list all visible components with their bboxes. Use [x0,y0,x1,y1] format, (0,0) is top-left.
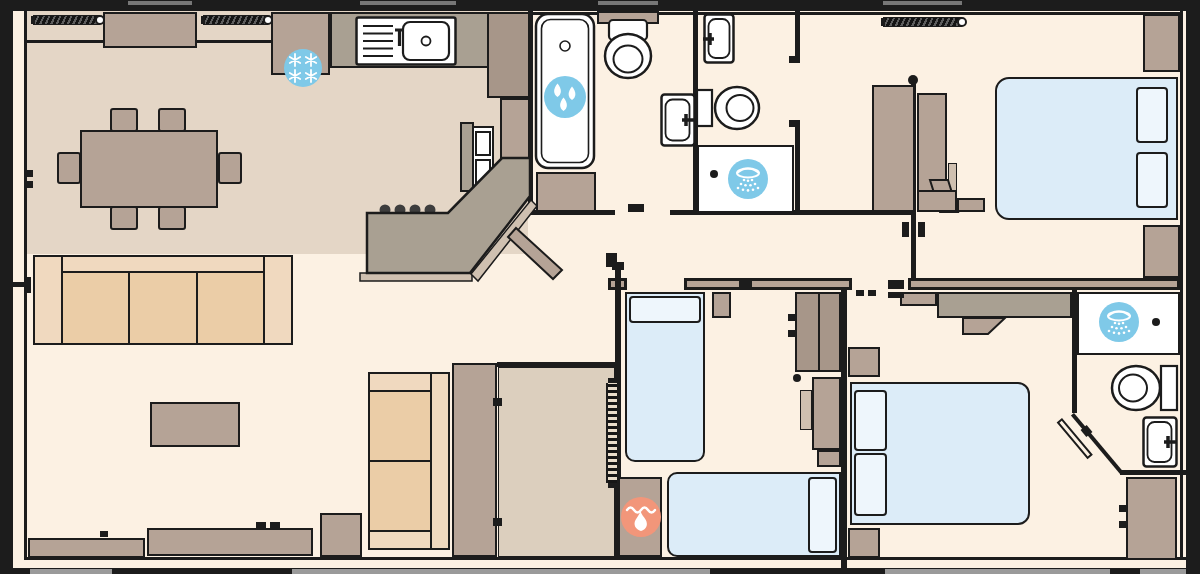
toilet [596,8,662,82]
kitchen-tall-unit [487,12,530,98]
pillow [629,296,701,323]
blind-end-cap [201,16,205,24]
sofa-back [430,372,450,550]
kitchen-sink [355,16,457,66]
door-hinge-mark [1119,505,1127,512]
locker-angled [961,316,1009,336]
door-hinge-mark [789,56,800,63]
window-segment-top [883,1,962,5]
wall-bracket [24,277,31,293]
sofa-cushion [368,460,432,532]
door-stop-mark [888,280,904,289]
basin [660,93,696,147]
door-stop-mark [628,204,644,212]
door-hinge-mark [24,170,33,177]
chassis-segment [885,569,1110,574]
wall-showerroom-master [795,0,800,62]
sofa-armrest [33,255,63,345]
wardrobe-divider [818,294,820,370]
handle-mark [788,330,796,337]
chassis-segment [1140,569,1186,574]
basin [1142,416,1178,468]
sofa-cushion [128,271,198,345]
storage-cupboard-floor [498,367,615,557]
wall-ensuite2-bottom [1120,470,1186,475]
dining-chair [158,108,186,132]
tv-unit [28,538,145,558]
sofa-cushion [368,390,432,462]
unit-detail [100,531,108,537]
outer-wall-right [1186,0,1200,574]
blind-roller-end [957,17,967,27]
wardrobe [1126,477,1177,560]
toilet [1106,363,1180,413]
bath-end-cabinet [536,172,596,212]
sofa-cushion [196,271,265,345]
radiator-cap [608,378,617,383]
overhead-locker [937,292,1072,318]
shower-control [1152,318,1160,326]
tall-cabinet [452,363,497,557]
sofa-armrest [368,372,432,392]
inner-wall-bottom [24,557,1186,560]
sideboard [103,12,197,48]
chassis-segment [292,569,710,574]
window-blind [883,17,962,27]
blind-end-cap [31,16,35,24]
window-segment-top [128,1,192,5]
sofa-armrest [368,530,432,550]
partition-end-post [908,75,918,85]
storage-top-wall [497,362,617,367]
window-blind [203,15,268,25]
storage-step [817,450,841,467]
door-stop-mark [888,292,904,298]
bedside-cabinet [848,528,880,558]
wall-showerroom-master [795,122,800,213]
heating-icon [620,496,662,538]
sofa-large [33,255,293,345]
pillow [854,453,887,516]
shower-icon-ensuite [1098,301,1140,343]
unit-detail [256,522,266,528]
toilet [695,82,763,134]
handle-mark [788,314,796,321]
outer-wall-left [0,0,13,574]
tv-unit [147,528,313,556]
basin [703,13,735,64]
bedside-cabinet [848,347,880,377]
dining-chair [57,152,81,184]
bedside-unit [712,292,731,318]
door-stop-mark [739,280,752,289]
door-hinge-mark [789,120,800,127]
bath [534,12,598,174]
dining-chair [158,206,186,230]
dressing-unit [917,190,957,212]
dressing-unit [957,198,985,212]
freezer-icon [283,48,323,88]
door-hinge-mark [493,398,502,406]
door-swing-mark [868,290,876,296]
door-hinge-mark [493,518,502,526]
pillow [1136,152,1168,208]
door-stop-mark [918,222,925,237]
inner-wall-right [1180,11,1183,560]
sofa-cushion [61,271,130,345]
radiator-cap [608,483,617,488]
blind-end-cap [881,18,885,26]
storage-unit [812,377,841,450]
dining-chair [110,108,138,132]
door-hinge-mark [612,262,624,270]
door-stop-mark [902,222,909,237]
dining-chair [110,206,138,230]
chassis-segment [30,569,112,574]
pillow [854,390,887,451]
shelf [800,390,812,430]
hinge-knob [793,374,801,382]
door-hinge-mark [24,181,33,188]
door-hinge-mark [1119,521,1127,528]
shower-drain [710,170,718,178]
hall-bottom-wall [684,278,852,290]
door-swing-mark [856,290,864,296]
dining-table [80,130,218,208]
coffee-table [150,402,240,447]
bedside-cabinet [1143,225,1180,278]
window-segment-top [598,1,658,5]
shower-icon-family [727,158,769,200]
window-blind [33,15,100,25]
pillow [1136,87,1168,143]
corner-unit [320,513,362,557]
wall-twin-double [841,290,847,568]
pillow [808,477,837,553]
dining-chair [218,152,242,184]
radiator [606,383,619,483]
floor-plan [0,0,1200,574]
sofa-armrest [263,255,293,345]
bedside-cabinet [1143,14,1180,72]
window-segment-top [360,1,456,5]
unit-detail [270,522,280,528]
overhead-locker [900,292,937,306]
wardrobe [872,85,915,212]
sofa-small [368,372,450,550]
hall-bottom-wall [908,278,1180,290]
